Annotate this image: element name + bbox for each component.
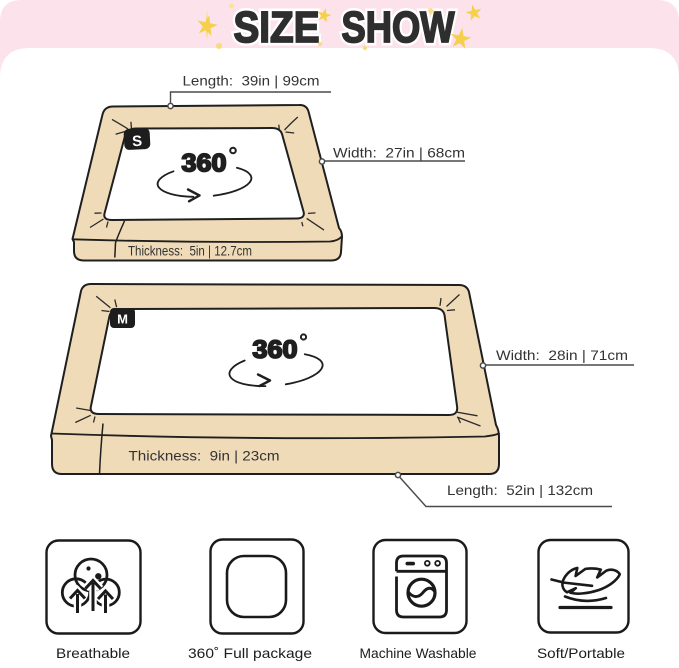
svg-text:360˚ Full package: 360˚ Full package xyxy=(188,645,312,661)
svg-text:Machine Washable: Machine Washable xyxy=(360,645,477,661)
svg-text:Length: 39in | 99cm: Length: 39in | 99cm xyxy=(183,73,320,89)
svg-text:Length: 52in | 132cm: Length: 52in | 132cm xyxy=(447,482,593,498)
svg-text:360: 360 xyxy=(182,149,227,177)
svg-text:SHOW: SHOW xyxy=(342,3,455,52)
svg-text:Thickness: 5in | 12.7cm: Thickness: 5in | 12.7cm xyxy=(128,243,252,259)
svg-text:M: M xyxy=(117,312,128,327)
svg-text:Width: 28in | 71cm: Width: 28in | 71cm xyxy=(496,347,628,363)
svg-text:Thickness: 9in | 23cm: Thickness: 9in | 23cm xyxy=(129,448,280,464)
svg-text:SIZE: SIZE xyxy=(234,3,320,52)
svg-text:Breathable: Breathable xyxy=(56,645,130,661)
svg-text:360: 360 xyxy=(253,336,298,364)
svg-text:S: S xyxy=(132,133,143,151)
svg-text:Soft/Portable: Soft/Portable xyxy=(537,645,625,661)
svg-text:Width: 27in | 68cm: Width: 27in | 68cm xyxy=(333,145,465,161)
